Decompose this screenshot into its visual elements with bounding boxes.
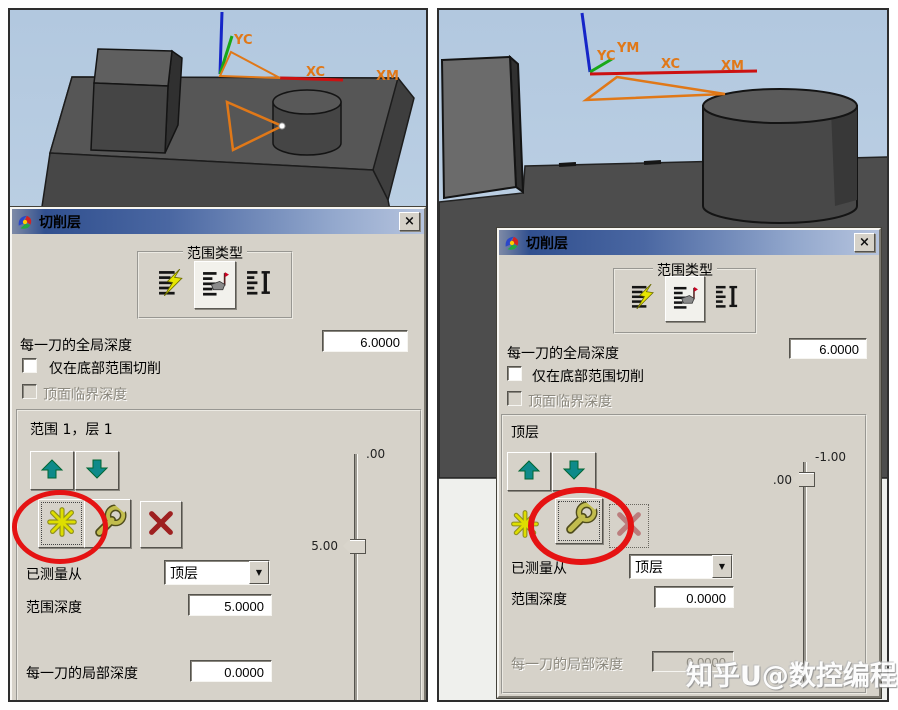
slider-top-label: .00: [366, 447, 385, 461]
dialog-title: 切削层: [526, 233, 568, 253]
slider-thumb-label: 5.00: [296, 539, 338, 553]
range-type-group: 范围类型: [137, 251, 293, 319]
range-type-user-defined-button[interactable]: [194, 261, 236, 309]
slider-top-label: -1.00: [815, 450, 846, 464]
next-range-button[interactable]: [75, 451, 119, 490]
auto-ranges-icon: [158, 269, 185, 300]
dialog-titlebar[interactable]: 切削层 ×: [12, 209, 424, 234]
cut-levels-dialog-left: 切削层 × 范围类型: [10, 207, 426, 702]
delete-range-button[interactable]: [140, 501, 182, 548]
close-icon[interactable]: ×: [399, 212, 420, 231]
range-label: 顶层: [511, 422, 539, 442]
delete-x-icon: [147, 509, 175, 541]
bottom-only-checkbox[interactable]: [507, 366, 522, 381]
previous-range-button[interactable]: [30, 451, 74, 490]
annotation-circle: [528, 487, 634, 565]
axis-label-xm: XM: [721, 59, 744, 74]
range-label: 范围 1，层 1: [30, 419, 113, 439]
range-type-single-button[interactable]: [708, 276, 746, 320]
part-box: [91, 49, 182, 153]
depth-slider-track[interactable]: [354, 454, 358, 702]
arrow-down-icon: [562, 459, 586, 485]
global-depth-field[interactable]: [322, 330, 408, 352]
range-depth-label: 范围深度: [511, 589, 567, 609]
axis-label-xc: XC: [661, 57, 680, 72]
measured-from-value: 顶层: [630, 555, 712, 578]
app-icon: [16, 213, 34, 231]
chevron-down-icon[interactable]: ▼: [712, 555, 732, 578]
local-depth-field[interactable]: [190, 660, 272, 682]
close-icon[interactable]: ×: [854, 233, 875, 252]
range-type-single-button[interactable]: [239, 261, 279, 307]
arrow-down-icon: [85, 458, 109, 484]
previous-range-button[interactable]: [507, 452, 551, 491]
measured-from-dropdown[interactable]: 顶层 ▼: [164, 560, 270, 585]
single-range-icon: [246, 269, 273, 300]
arrow-up-icon: [40, 458, 64, 484]
user-defined-ranges-icon: [673, 285, 698, 314]
top-critical-label: 顶面临界深度: [528, 391, 612, 411]
range-type-group: 范围类型: [613, 268, 757, 334]
range-type-user-defined-button[interactable]: [665, 276, 705, 322]
local-depth-label: 每一刀的局部深度: [26, 663, 138, 683]
user-defined-ranges-icon: [202, 270, 229, 301]
right-panel: YC YM XC XM 切削层 ×: [437, 8, 889, 702]
part-cylinder: [703, 89, 857, 223]
range-detail-group: 范围 1，层 1: [16, 409, 422, 702]
app-icon: [503, 234, 521, 252]
range-type-auto-button[interactable]: [151, 261, 191, 307]
arrow-up-icon: [517, 459, 541, 485]
next-range-button[interactable]: [552, 452, 596, 491]
dialog-titlebar[interactable]: 切削层 ×: [499, 230, 879, 255]
global-depth-label: 每一刀的全局深度: [20, 335, 132, 355]
dialog-title: 切削层: [39, 212, 81, 232]
top-critical-label: 顶面临界深度: [43, 384, 127, 404]
axis-label-yc: YC: [596, 49, 616, 64]
part-box: [442, 57, 523, 198]
part-cylinder: [273, 90, 341, 155]
top-critical-checkbox: [507, 391, 522, 406]
range-depth-field[interactable]: [188, 594, 272, 616]
range-depth-field[interactable]: [654, 586, 734, 608]
depth-slider-track[interactable]: [803, 462, 807, 686]
bottom-only-label: 仅在底部范围切削: [49, 358, 161, 378]
slider-thumb-label: .00: [752, 473, 792, 487]
local-depth-label: 每一刀的局部深度: [511, 654, 623, 674]
range-depth-label: 范围深度: [26, 597, 82, 617]
cut-levels-dialog-right: 切削层 × 范围类型: [497, 228, 881, 698]
measured-from-label: 已测量从: [26, 564, 82, 584]
bottom-only-checkbox[interactable]: [22, 358, 37, 373]
depth-slider-thumb[interactable]: [350, 539, 366, 554]
screenshot-root: YC XC XM 切削层 ×: [0, 0, 898, 710]
watermark: 知乎U@数控编程: [686, 654, 897, 693]
global-depth-field[interactable]: [789, 338, 867, 359]
left-panel: YC XC XM 切削层 ×: [8, 8, 428, 702]
global-depth-label: 每一刀的全局深度: [507, 343, 619, 363]
axis-label-xc: XC: [306, 65, 325, 80]
axis-label-xm: XM: [376, 69, 399, 84]
annotation-circle: [12, 490, 108, 564]
single-range-icon: [715, 284, 740, 313]
auto-ranges-icon: [631, 284, 656, 313]
top-critical-checkbox: [22, 384, 37, 399]
axis-label-ym: YM: [616, 41, 639, 56]
depth-slider-thumb[interactable]: [799, 472, 815, 487]
axis-label-yc: YC: [233, 33, 253, 48]
range-type-auto-button[interactable]: [624, 276, 662, 320]
range-type-label: 范围类型: [183, 243, 247, 263]
bottom-only-label: 仅在底部范围切削: [532, 366, 644, 386]
measured-from-dropdown[interactable]: 顶层 ▼: [629, 554, 733, 579]
range-detail-group: 顶层: [501, 414, 867, 694]
measured-from-value: 顶层: [165, 561, 249, 584]
chevron-down-icon[interactable]: ▼: [249, 561, 269, 584]
